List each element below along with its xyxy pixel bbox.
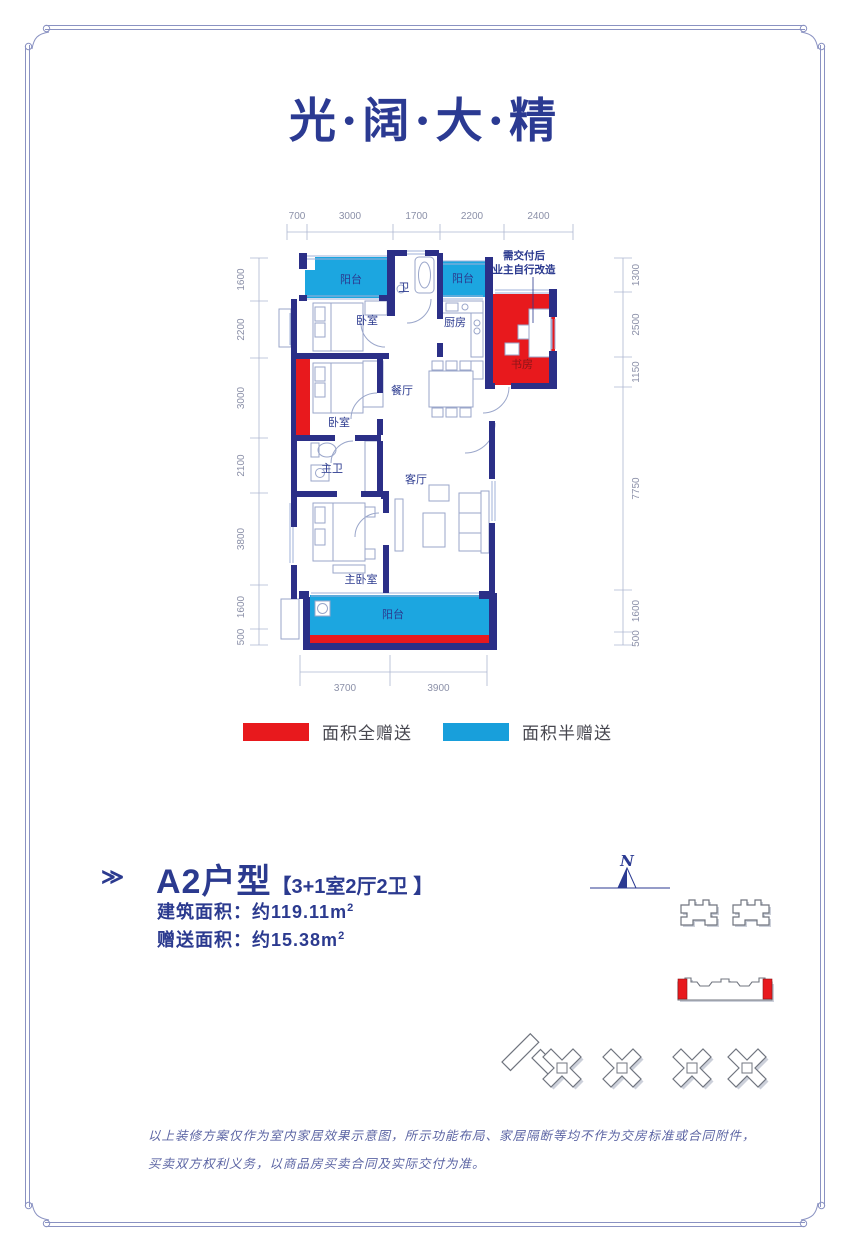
page-title: 光·阔·大·精 (0, 82, 850, 151)
dimension-label: 3000 (339, 211, 362, 222)
room-label: 阳台 (382, 607, 404, 621)
unit-area-row: 建筑面积：约119.11m2 (157, 898, 354, 924)
unit-marker: ≫ (101, 864, 124, 890)
unit-spec: 【3+1室2厅2卫 】 (271, 870, 433, 899)
unit-title: A2户型 【3+1室2厅2卫 】 (156, 854, 433, 903)
disclaimer-line: 买卖双方权利义务，以商品房买卖合同及实际交付为准。 (148, 1150, 756, 1178)
poster: 光·阔·大·精 (0, 0, 850, 1252)
dimension-label: 1700 (405, 211, 428, 222)
site-plan-building (673, 1049, 714, 1090)
room-label: 书房 (511, 358, 533, 371)
dimension-label: 2500 (631, 313, 642, 336)
dimension-label: 1150 (631, 361, 642, 383)
area-value: 约119.11m (252, 902, 347, 922)
room-label: 主卫 (321, 462, 343, 475)
a2-unit-highlight (763, 979, 772, 999)
dimension-label: 7750 (631, 477, 642, 500)
room-label: 卧室 (356, 313, 378, 327)
dimension-label: 3800 (236, 527, 247, 550)
dimension-label: 1300 (631, 263, 642, 286)
legend-swatch-blue (443, 723, 509, 741)
unit-name: A2户型 (156, 854, 271, 903)
room-label: 客厅 (405, 472, 427, 486)
site-plan-building (733, 900, 771, 927)
room-label: 卫 (399, 282, 410, 294)
room-label: 餐厅 (391, 383, 413, 397)
legend-item-full-gift: 面积全赠送 (243, 719, 412, 744)
unit-gift-row: 赠送面积：约15.38m2 (157, 926, 345, 952)
legend-swatch-red (243, 723, 309, 741)
area-label: 建筑面积： (157, 902, 252, 922)
dimension-label: 500 (236, 628, 247, 645)
area-sup: 2 (347, 902, 354, 914)
dimension-label: 3900 (427, 683, 450, 694)
dimension-label: 3700 (334, 683, 357, 694)
dimension-label: 500 (631, 630, 642, 647)
dimension-label: 2100 (236, 454, 247, 477)
dimension-label: 1600 (236, 595, 247, 618)
room-label: 阳台 (452, 271, 474, 285)
site-plan-building (728, 1049, 769, 1090)
dimension-label: 2200 (461, 211, 484, 222)
dimension-label: 2200 (236, 318, 247, 341)
site-plan-building (603, 1049, 644, 1090)
dimension-label: 2400 (527, 211, 550, 222)
annotation-line: 业主自行改造 (493, 263, 556, 276)
legend-item-half-gift: 面积半赠送 (443, 719, 612, 744)
room-label: 卧室 (328, 415, 350, 429)
floor-plan: 需交付后 业主自行改造 阳台卫阳台卧室厨房书房餐厅卧室主卫客厅主卧室阳台 700… (215, 195, 660, 710)
room-label: 主卧室 (345, 572, 378, 586)
site-plan: N (480, 840, 810, 1100)
compass: N (590, 852, 670, 888)
area-label: 赠送面积： (157, 930, 252, 950)
legend-label: 面积半赠送 (522, 719, 612, 744)
dimension-label: 1600 (631, 599, 642, 622)
area-value: 约15.38m (252, 930, 338, 950)
area-sup: 2 (338, 930, 345, 942)
disclaimer-line: 以上装修方案仅作为室内家居效果示意图，所示功能布局、家居隔断等均不作为交房标准或… (148, 1122, 756, 1150)
disclaimer: 以上装修方案仅作为室内家居效果示意图，所示功能布局、家居隔断等均不作为交房标准或… (148, 1122, 756, 1178)
dimension-label: 700 (289, 211, 306, 222)
dimension-label: 3000 (236, 386, 247, 409)
a2-unit-highlight (678, 979, 687, 999)
site-plan-building (681, 900, 719, 927)
dimension-label: 1600 (236, 268, 247, 291)
legend-label: 面积全赠送 (322, 719, 412, 744)
room-label: 阳台 (340, 272, 362, 286)
room-label: 厨房 (444, 316, 466, 329)
annotation-line: 需交付后 (503, 249, 545, 262)
site-plan-building-highlighted (678, 978, 774, 1002)
